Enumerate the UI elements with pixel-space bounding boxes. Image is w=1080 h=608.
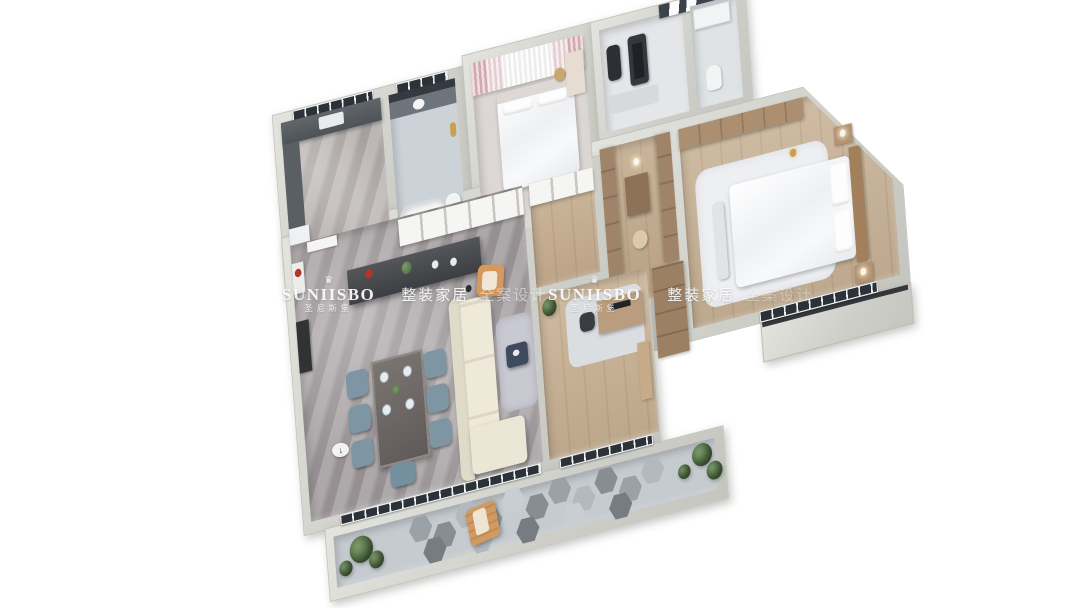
dining-table bbox=[371, 349, 430, 469]
floor-marker-glyph: ↓ bbox=[337, 445, 344, 456]
entry-console bbox=[292, 261, 306, 295]
hex-tile bbox=[640, 455, 665, 486]
accent-armchair-cushion bbox=[481, 271, 497, 290]
hex-tile bbox=[594, 465, 619, 496]
exercise-bike bbox=[606, 44, 622, 82]
closet-island-drawer bbox=[624, 172, 650, 217]
hex-tile bbox=[547, 475, 572, 506]
gold-fixture bbox=[450, 122, 457, 138]
master-pillow bbox=[832, 209, 853, 255]
master-pillow bbox=[829, 162, 850, 208]
balcony-plant bbox=[339, 559, 353, 578]
apartment-plan bbox=[271, 0, 922, 606]
floorplan-stage: ↓ ♛ SUNIISBO 圣尼斯堡 整装家居全案设计 ♛ SUNIISBO 圣尼… bbox=[0, 0, 1080, 608]
vanity-desk bbox=[564, 49, 585, 97]
washroom-toilet bbox=[705, 63, 722, 91]
balcony-plant bbox=[678, 463, 692, 481]
master-closet-column bbox=[652, 261, 690, 359]
